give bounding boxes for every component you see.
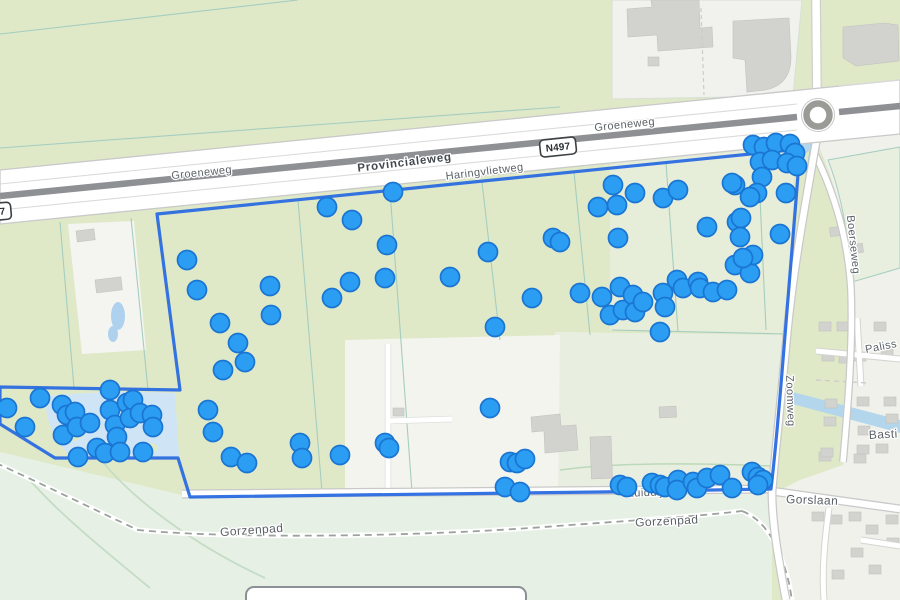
location-marker[interactable] [384,183,403,202]
location-marker[interactable] [211,314,230,333]
location-marker[interactable] [741,188,760,207]
location-marker[interactable] [238,454,257,473]
location-marker[interactable] [262,306,281,325]
location-marker[interactable] [589,198,608,217]
location-marker[interactable] [626,184,645,203]
location-marker[interactable] [101,381,120,400]
location-marker[interactable] [199,401,218,420]
road-label-zoomweg: Zoomweg [783,375,797,427]
location-marker[interactable] [293,449,312,468]
location-marker[interactable] [323,289,342,308]
location-marker[interactable] [651,323,670,342]
road-north-arm [816,0,817,100]
location-marker[interactable] [134,443,153,462]
location-marker[interactable] [788,157,807,176]
location-marker[interactable] [378,236,397,255]
location-marker[interactable] [523,289,542,308]
location-marker[interactable] [343,211,362,230]
location-marker[interactable] [111,443,130,462]
location-marker[interactable] [0,399,17,418]
location-marker[interactable] [609,229,628,248]
location-marker[interactable] [178,251,197,270]
location-marker[interactable] [318,198,337,217]
map-canvas[interactable]: Groeneweg Provincialeweg Haringvlietweg … [0,0,900,600]
roundabout [802,99,835,132]
location-marker[interactable] [732,209,751,228]
location-marker[interactable] [777,184,796,203]
location-marker[interactable] [204,423,223,442]
location-marker[interactable] [188,281,207,300]
location-marker[interactable] [723,479,742,498]
location-marker[interactable] [261,277,280,296]
location-marker[interactable] [16,418,35,437]
location-marker[interactable] [571,284,590,303]
location-marker[interactable] [511,483,530,502]
location-marker[interactable] [718,281,737,300]
location-marker[interactable] [698,218,717,237]
location-marker[interactable] [749,476,768,495]
water-pond-left [111,302,125,330]
location-marker[interactable] [593,288,612,307]
location-marker[interactable] [144,418,163,437]
location-marker[interactable] [236,353,255,372]
location-marker[interactable] [31,389,50,408]
location-marker[interactable] [481,399,500,418]
location-marker[interactable] [734,249,753,268]
area-farm-clearing [345,335,560,494]
location-marker[interactable] [376,269,395,288]
location-marker[interactable] [441,268,460,287]
location-marker[interactable] [604,176,623,195]
bottom-panel[interactable] [245,586,527,600]
location-marker[interactable] [669,181,688,200]
route-shield-n497: N497 [539,137,577,158]
route-shield-n497-edge: N497 [0,202,12,222]
location-marker[interactable] [69,448,88,467]
location-marker[interactable] [380,439,399,458]
location-marker[interactable] [656,298,675,317]
road-label-gorslaan: Gorslaan [786,492,839,508]
location-marker[interactable] [331,446,350,465]
road-label-bastion: Basti [868,427,898,442]
location-marker[interactable] [486,318,505,337]
location-marker[interactable] [516,450,535,469]
location-marker[interactable] [341,273,360,292]
location-marker[interactable] [723,174,742,193]
location-marker[interactable] [229,334,248,353]
location-marker[interactable] [618,478,637,497]
location-marker[interactable] [551,233,570,252]
location-marker[interactable] [479,243,498,262]
location-marker[interactable] [634,293,653,312]
location-marker[interactable] [214,361,233,380]
location-marker[interactable] [731,228,750,247]
location-marker[interactable] [771,225,790,244]
location-marker[interactable] [81,414,100,433]
location-marker[interactable] [608,196,627,215]
